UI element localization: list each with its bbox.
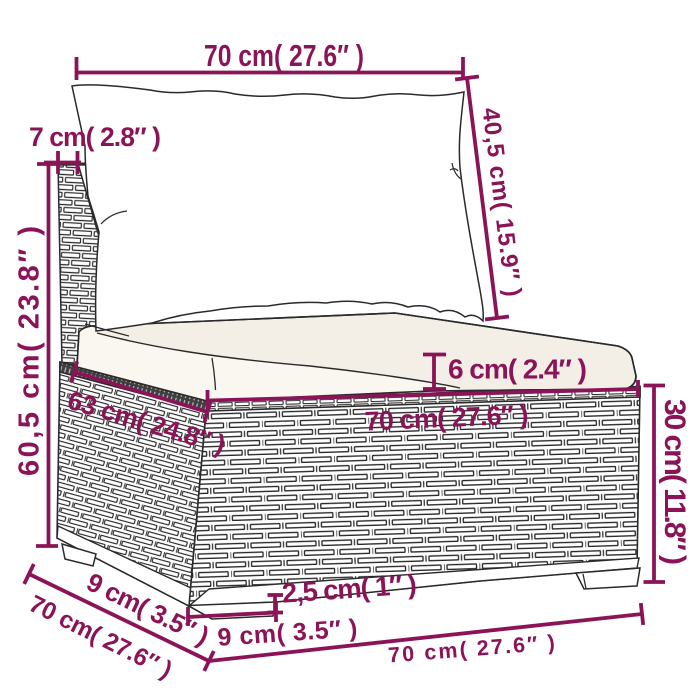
svg-text:7 cm( 2.8″ ): 7 cm( 2.8″ ) <box>29 122 161 152</box>
svg-text:6 cm( 2.4″ ): 6 cm( 2.4″ ) <box>448 354 587 385</box>
svg-text:60,5 cm( 23.8″ ): 60,5 cm( 23.8″ ) <box>14 226 46 476</box>
svg-text:70 cm( 27.6″ ): 70 cm( 27.6″ ) <box>204 38 364 73</box>
svg-text:30 cm( 11.8″ ): 30 cm( 11.8″ ) <box>658 399 691 565</box>
